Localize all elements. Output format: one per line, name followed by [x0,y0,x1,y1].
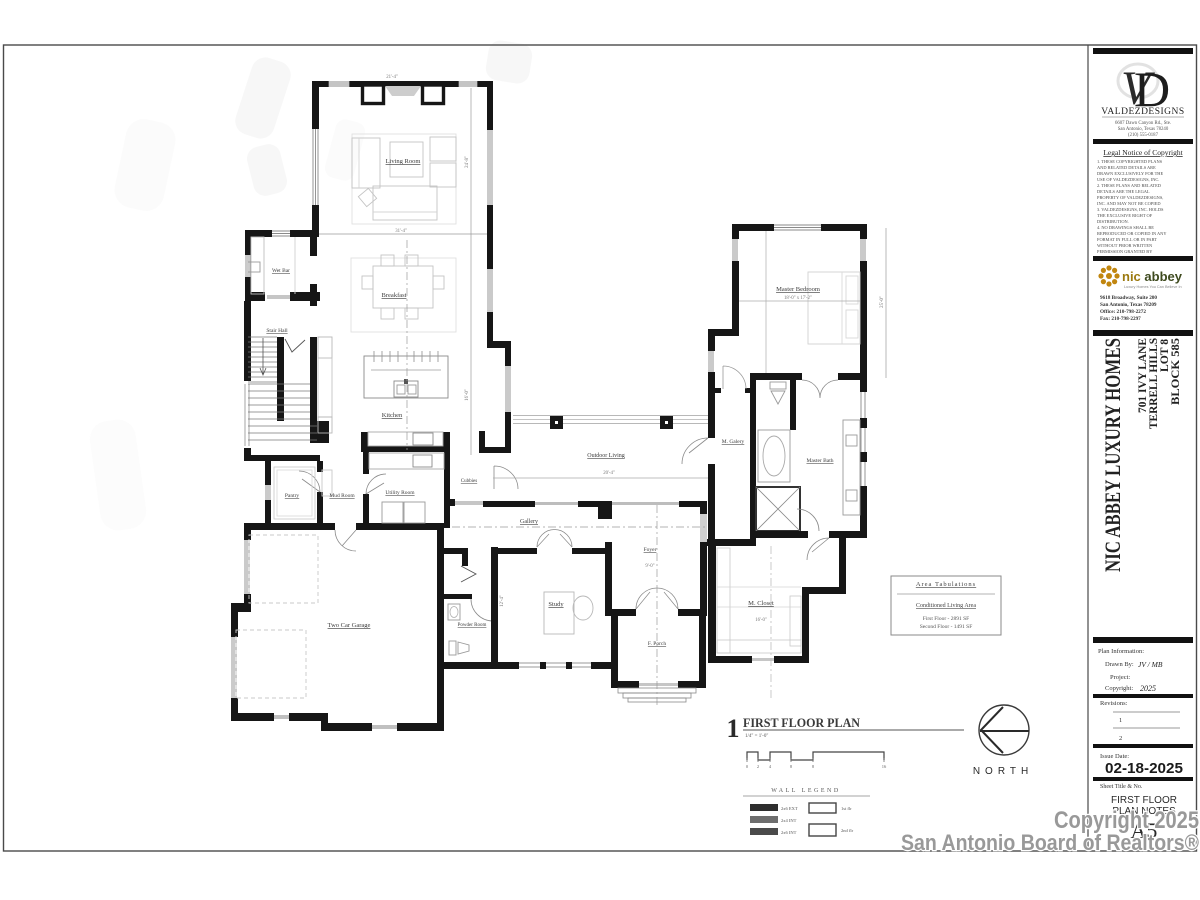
svg-text:16'-0": 16'-0" [755,618,767,623]
svg-text:Issue Date:: Issue Date: [1100,753,1129,760]
svg-text:DISTRIBUTION.: DISTRIBUTION. [1097,219,1129,224]
svg-text:Mud Room: Mud Room [329,493,355,499]
svg-text:Kitchen: Kitchen [382,412,403,419]
svg-text:2. THESE PLANS AND RELATED: 2. THESE PLANS AND RELATED [1097,183,1161,188]
svg-text:4. NO DRAWINGS SHALL BE: 4. NO DRAWINGS SHALL BE [1097,225,1154,230]
svg-text:31'-4": 31'-4" [395,229,407,234]
svg-text:BLOCK 585: BLOCK 585 [1170,338,1182,405]
svg-text:2x6 EXT: 2x6 EXT [781,806,798,811]
svg-text:1/4" = 1'-0": 1/4" = 1'-0" [745,734,768,739]
svg-text:1: 1 [727,714,740,743]
svg-text:Two Car Garage: Two Car Garage [328,622,371,629]
svg-text:Foyer: Foyer [644,547,657,553]
svg-text:Revisions:: Revisions: [1100,700,1128,707]
svg-text:F. Porch: F. Porch [648,641,666,647]
svg-text:2x4 INT: 2x4 INT [781,818,797,823]
svg-text:(210) 555-0187: (210) 555-0187 [1128,133,1159,138]
svg-text:Copyright:: Copyright: [1105,685,1133,692]
svg-text:25'-0": 25'-0" [880,296,885,308]
svg-text:Office: 210-798-2272: Office: 210-798-2272 [1100,309,1146,315]
svg-text:Fax: 210-798-2297: Fax: 210-798-2297 [1100,316,1141,322]
svg-text:Cubbies: Cubbies [461,479,477,484]
svg-text:Outdoor Living: Outdoor Living [587,453,625,459]
svg-text:nic abbey: nic abbey [1122,269,1183,284]
svg-text:16: 16 [882,764,887,769]
svg-text:Master Bedroom: Master Bedroom [776,286,820,293]
svg-text:Luxury Homes You Can Believe I: Luxury Homes You Can Believe In [1124,285,1182,289]
svg-text:Breakfast: Breakfast [382,292,407,299]
svg-text:2025: 2025 [1140,684,1156,693]
svg-text:First Floor - 2891 SF: First Floor - 2891 SF [923,616,969,622]
svg-text:2nd flr: 2nd flr [841,828,854,833]
svg-text:Project:: Project: [1110,674,1130,681]
svg-text:INC. AND MAY NOT BE COPIED: INC. AND MAY NOT BE COPIED [1097,201,1161,206]
svg-text:2: 2 [757,764,759,769]
svg-text:9618 Broadway, Suite 200: 9618 Broadway, Suite 200 [1100,295,1157,301]
svg-text:DETAILS ARE THE LEGAL: DETAILS ARE THE LEGAL [1097,189,1150,194]
svg-text:Area Tabulations: Area Tabulations [916,581,976,588]
svg-text:Sheet Title & No.: Sheet Title & No. [1100,784,1143,790]
svg-text:16'-0": 16'-0" [465,389,470,401]
svg-text:Second Floor - 1491 SF: Second Floor - 1491 SF [920,624,973,630]
svg-text:Study: Study [548,601,564,608]
svg-text:REPRODUCED OR COPIED IN ANY: REPRODUCED OR COPIED IN ANY [1097,231,1167,236]
svg-text:Master Bath: Master Bath [806,458,833,464]
svg-text:NIC ABBEY LUXURY HOMES: NIC ABBEY LUXURY HOMES [1100,338,1125,572]
svg-text:1: 1 [1119,717,1122,724]
svg-text:1. THESE COPYRIGHTED PLANS: 1. THESE COPYRIGHTED PLANS [1097,159,1163,164]
svg-text:9'-0": 9'-0" [645,564,654,569]
svg-text:2: 2 [1119,735,1122,742]
svg-text:FIRST FLOOR: FIRST FLOOR [1111,795,1177,806]
svg-text:FORMAT IN FULL OR IN PART: FORMAT IN FULL OR IN PART [1097,237,1157,242]
svg-text:Powder Room: Powder Room [458,623,487,628]
svg-text:Conditioned Living Area: Conditioned Living Area [916,603,976,609]
svg-text:2x6 INT: 2x6 INT [781,830,797,835]
svg-text:Utility Room: Utility Room [385,490,415,496]
svg-text:Gallery: Gallery [520,519,538,525]
svg-text:JV / MB: JV / MB [1138,660,1163,669]
svg-text:Living Room: Living Room [386,158,421,165]
svg-text:18'-0" x 17'-2": 18'-0" x 17'-2" [784,296,812,301]
svg-text:Stair Hall: Stair Hall [266,328,288,334]
svg-text:Pantry: Pantry [285,493,300,499]
svg-text:Plan Information:: Plan Information: [1098,648,1144,655]
svg-text:PERMISSION GRANTED BY: PERMISSION GRANTED BY [1097,249,1153,254]
svg-text:24'-8": 24'-8" [465,156,470,168]
svg-text:Wet Bar: Wet Bar [272,268,290,274]
svg-text:DRAWN EXCLUSIVELY FOR THE: DRAWN EXCLUSIVELY FOR THE [1097,171,1163,176]
svg-text:THE EXCLUSIVE RIGHT OF: THE EXCLUSIVE RIGHT OF [1097,213,1153,218]
svg-text:M. Closet: M. Closet [748,600,774,607]
svg-text:San Antonio, Texas 78209: San Antonio, Texas 78209 [1100,302,1157,308]
svg-text:WALL LEGEND: WALL LEGEND [771,788,840,794]
svg-text:M. Galery: M. Galery [722,439,745,445]
svg-text:Legal Notice of Copyright: Legal Notice of Copyright [1103,148,1183,157]
svg-text:20'-4": 20'-4" [603,471,615,476]
svg-text:12'-4": 12'-4" [500,595,505,607]
svg-text:AND RELATED DETAILS ARE: AND RELATED DETAILS ARE [1097,165,1156,170]
svg-text:NORTH: NORTH [973,766,1033,777]
svg-text:WITHOUT PRIOR WRITTEN: WITHOUT PRIOR WRITTEN [1097,243,1153,248]
svg-text:Drawn By:: Drawn By: [1105,661,1134,668]
svg-text:02-18-2025: 02-18-2025 [1105,761,1183,777]
svg-text:1st flr: 1st flr [841,806,852,811]
svg-text:21'-4": 21'-4" [386,75,398,80]
svg-text:6607 Dawn Canyon Rd., Ste.: 6607 Dawn Canyon Rd., Ste. [1115,121,1171,126]
svg-text:San Antonio, Texas 78240: San Antonio, Texas 78240 [1118,127,1169,132]
svg-text:FIRST FLOOR PLAN: FIRST FLOOR PLAN [743,715,861,730]
svg-text:VALDEZDESIGNS: VALDEZDESIGNS [1101,107,1184,117]
svg-text:San Antonio Board of Realtors®: San Antonio Board of Realtors® [901,830,1199,855]
